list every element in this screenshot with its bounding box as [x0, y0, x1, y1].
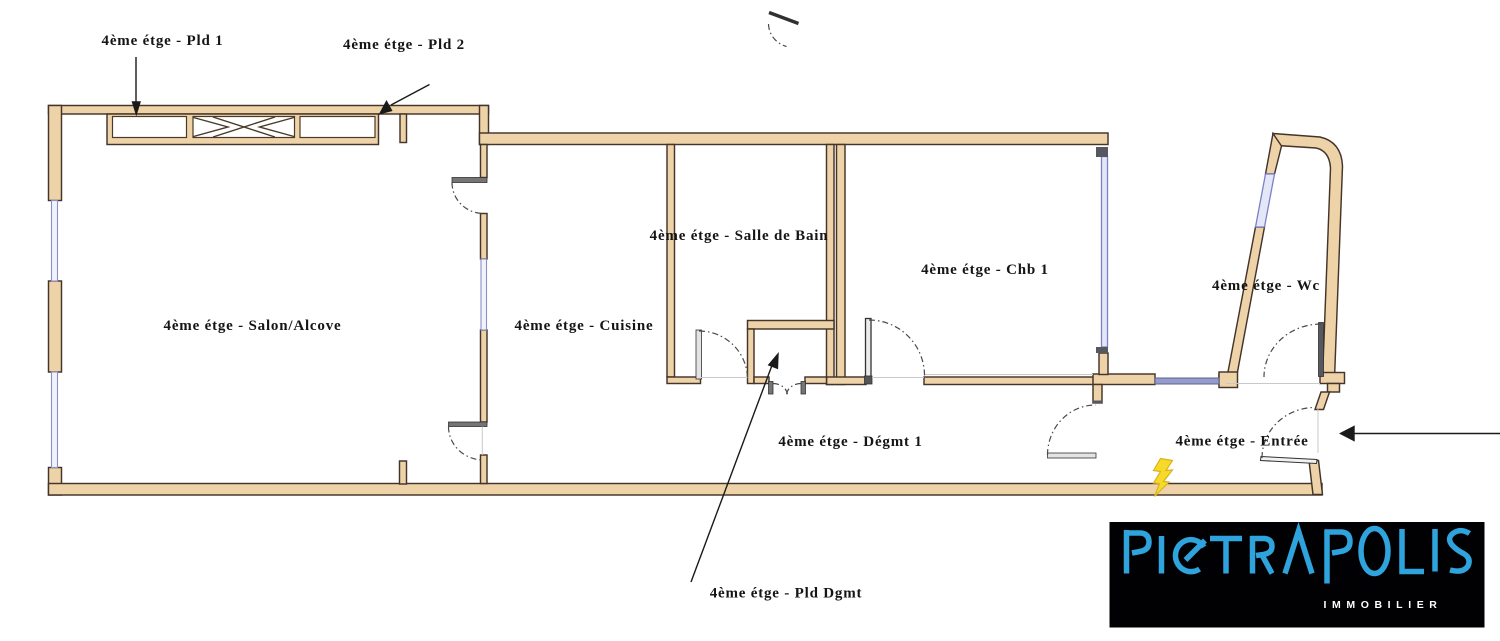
svg-text:4ème étge - Salle de Bain: 4ème étge - Salle de Bain — [650, 228, 829, 244]
svg-text:4ème étge - Wc: 4ème étge - Wc — [1212, 278, 1320, 294]
svg-text:4ème étge - Pld Dgmt: 4ème étge - Pld Dgmt — [710, 586, 863, 602]
svg-text:4ème étge - Pld 1: 4ème étge - Pld 1 — [102, 33, 224, 49]
svg-text:4ème étge - Salon/Alcove: 4ème étge - Salon/Alcove — [164, 318, 342, 334]
svg-text:4ème étge - Cuisine: 4ème étge - Cuisine — [515, 318, 654, 334]
svg-text:4ème étge - Pld 2: 4ème étge - Pld 2 — [343, 37, 465, 53]
svg-text:IMMOBILIER: IMMOBILIER — [1324, 599, 1443, 611]
svg-text:4ème étge - Entrée: 4ème étge - Entrée — [1175, 434, 1308, 450]
svg-text:4ème étge - Chb 1: 4ème étge - Chb 1 — [921, 262, 1049, 278]
svg-text:4ème étge - Dégmt 1: 4ème étge - Dégmt 1 — [778, 434, 922, 450]
